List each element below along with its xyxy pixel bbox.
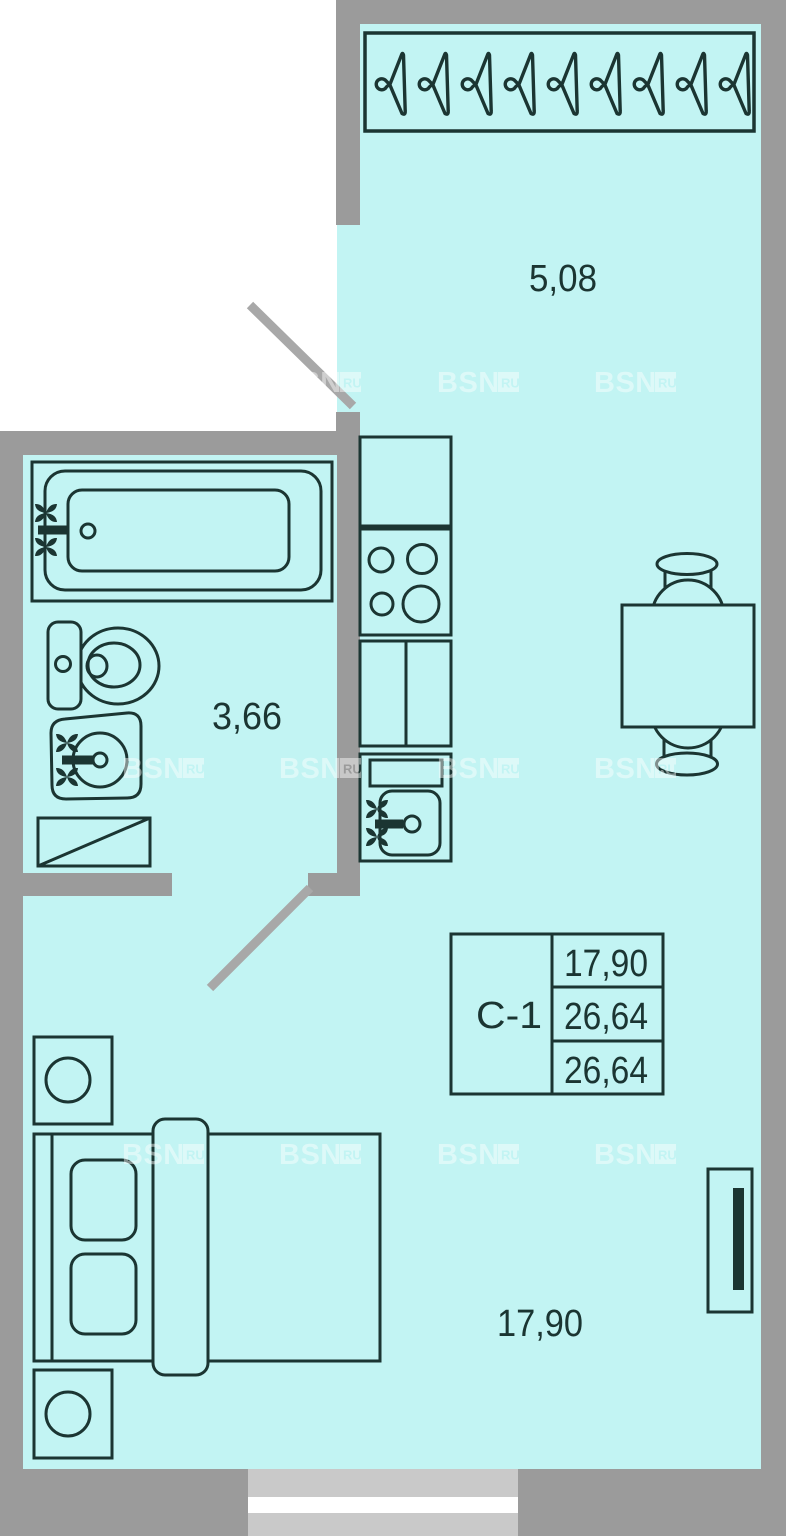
svg-text:17,90: 17,90 [564, 943, 648, 985]
svg-text:17,90: 17,90 [497, 1303, 583, 1345]
svg-text:3,66: 3,66 [212, 696, 282, 738]
svg-text:С-1: С-1 [476, 995, 542, 1037]
svg-text:5,08: 5,08 [529, 258, 597, 300]
svg-text:26,64: 26,64 [564, 1050, 648, 1092]
svg-text:26,64: 26,64 [564, 996, 648, 1038]
